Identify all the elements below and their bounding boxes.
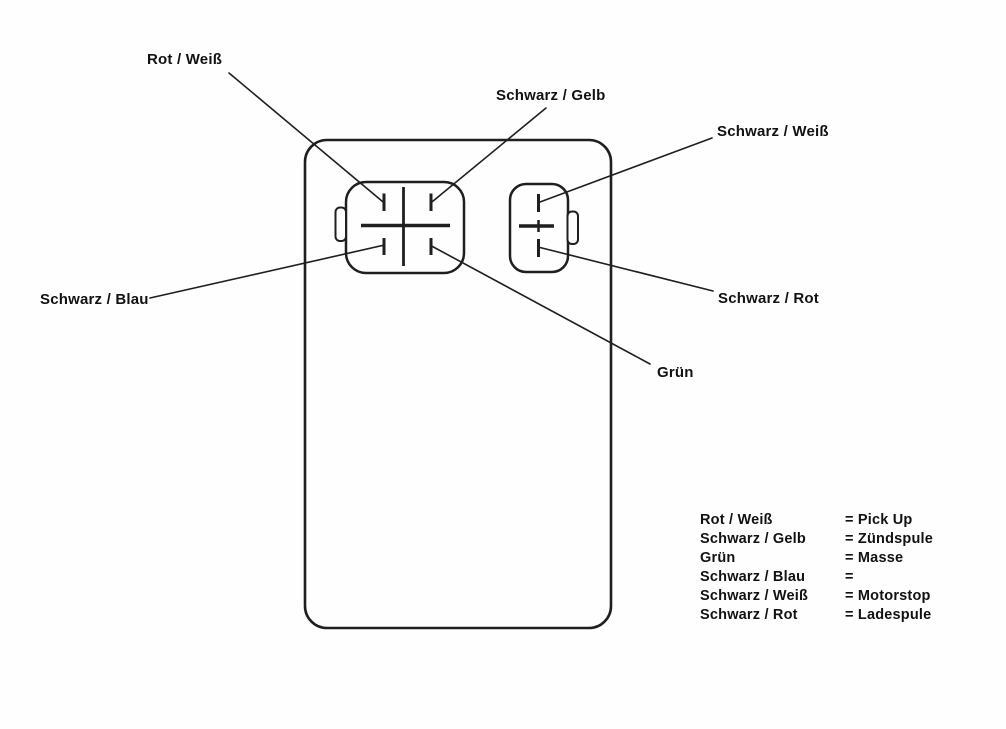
legend-wire: Grün [700, 550, 735, 566]
callout-schwarz-gelb: Schwarz / Gelb [496, 87, 606, 104]
diagram-page: Rot / Weiß Schwarz / Gelb Schwarz / Weiß… [0, 0, 1006, 729]
legend-wire: Schwarz / Weiß [700, 588, 808, 604]
callout-schwarz-rot: Schwarz / Rot [718, 290, 819, 307]
right-connector-latch-tab [568, 212, 579, 245]
legend-function: = [845, 569, 854, 585]
legend-function: = Zündspule [845, 531, 933, 547]
callout-rot-weiss: Rot / Weiß [147, 51, 222, 68]
legend-function: = Masse [845, 550, 903, 566]
legend-wire: Schwarz / Gelb [700, 531, 806, 547]
legend-function: = Pick Up [845, 512, 912, 528]
callout-gruen: Grün [657, 364, 694, 381]
legend-wire: Schwarz / Rot [700, 607, 798, 623]
legend-wire: Schwarz / Blau [700, 569, 805, 585]
legend-function: = Motorstop [845, 588, 931, 604]
callout-schwarz-blau: Schwarz / Blau [40, 291, 149, 308]
legend-function: = Ladespule [845, 607, 931, 623]
left-connector-latch-tab [336, 208, 347, 242]
legend-wire: Rot / Weiß [700, 512, 773, 528]
callout-schwarz-weiss: Schwarz / Weiß [717, 123, 829, 140]
wiring-diagram-canvas: Rot / Weiß Schwarz / Gelb Schwarz / Weiß… [0, 0, 1006, 729]
